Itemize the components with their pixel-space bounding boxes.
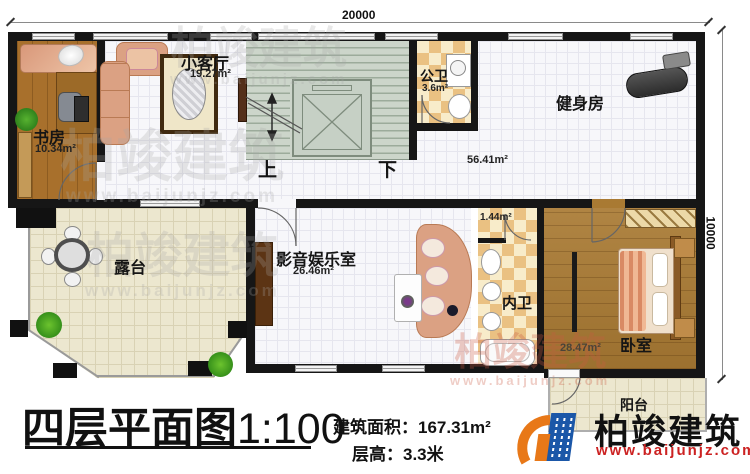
dimension-right-label: 10000 bbox=[704, 216, 718, 249]
living-area: 19.27m² bbox=[190, 68, 231, 80]
window-media bbox=[382, 365, 425, 372]
building-area-value: 167.31m² bbox=[418, 418, 491, 437]
dimension-line-right bbox=[722, 30, 723, 380]
stair-treads-left bbox=[246, 79, 290, 160]
terrace-floor bbox=[17, 208, 246, 378]
floor-height-label: 层高： bbox=[352, 445, 403, 464]
bedroom-nightstand bbox=[674, 318, 695, 338]
closet-area: 1.44m² bbox=[480, 212, 512, 223]
study-area: 10.34m² bbox=[35, 143, 76, 155]
living-sofa bbox=[100, 61, 130, 145]
media-tv-cabinet bbox=[255, 242, 273, 326]
window bbox=[32, 33, 75, 40]
dimension-line-top bbox=[10, 22, 710, 23]
terrace-column bbox=[228, 321, 247, 338]
media-sofa-cushion bbox=[421, 238, 445, 258]
wall-closet-bottom bbox=[478, 238, 506, 243]
floor-height-line: 层高：3.3米 bbox=[352, 440, 444, 465]
terrace-table bbox=[54, 238, 90, 272]
wall-media-left bbox=[246, 208, 255, 373]
inner-bath-bathtub-inner bbox=[485, 343, 530, 362]
bedroom-area: 28.47m² bbox=[560, 342, 601, 354]
brand-url: www.baijunjz.com bbox=[596, 442, 750, 459]
balcony-door-panel bbox=[548, 369, 580, 378]
bedroom-label: 卧室 bbox=[620, 332, 652, 356]
elevator-door-mark bbox=[312, 85, 352, 91]
terrace-plant bbox=[208, 352, 233, 377]
window-terrace bbox=[140, 200, 200, 207]
terrace-label: 露台 bbox=[114, 254, 146, 278]
window-media bbox=[295, 365, 337, 372]
building-area-label: 建筑面积： bbox=[333, 418, 418, 437]
dimension-tick bbox=[704, 17, 713, 26]
window bbox=[258, 33, 375, 40]
terrace-column bbox=[16, 208, 56, 228]
media-sofa-cushion bbox=[425, 266, 449, 286]
inner-bath-sink bbox=[482, 312, 501, 331]
dimension-tick bbox=[717, 374, 726, 383]
terrace-column bbox=[10, 320, 28, 337]
dimension-top-label: 20000 bbox=[342, 8, 375, 22]
study-cabinet bbox=[18, 132, 32, 198]
living-tv-cabinet bbox=[238, 78, 247, 122]
wall-inner-bath-right bbox=[537, 208, 544, 365]
floor-height-value: 3.3米 bbox=[403, 445, 444, 464]
media-area: 26.46m² bbox=[293, 265, 334, 277]
stair-up-label: 上 bbox=[258, 155, 277, 182]
wall-right bbox=[696, 32, 705, 378]
stair-treads-right bbox=[372, 79, 409, 160]
stair-down-label: 下 bbox=[378, 155, 397, 182]
door-gap-media bbox=[258, 199, 296, 208]
door-gap-bedroom bbox=[592, 199, 625, 208]
wall-stairwell-right bbox=[409, 32, 417, 160]
public-bath-basin bbox=[450, 60, 466, 76]
public-bath-area: 3.6m² bbox=[422, 83, 448, 94]
window bbox=[210, 33, 252, 40]
floor-plan-canvas: 20000 10000 bbox=[0, 0, 750, 474]
terrace-chair bbox=[88, 248, 103, 265]
door-gap-study bbox=[97, 162, 105, 200]
stair-treads-top bbox=[246, 41, 409, 79]
bedroom-wardrobe bbox=[625, 209, 696, 228]
inner-bath-sink bbox=[482, 282, 501, 301]
bedroom-pillow bbox=[652, 253, 668, 287]
bedroom-blanket bbox=[620, 251, 646, 331]
brand-logo-icon bbox=[512, 408, 592, 466]
media-person bbox=[447, 305, 458, 316]
window bbox=[93, 33, 168, 40]
wall-public-bath-right bbox=[471, 32, 478, 131]
inner-bath-toilet bbox=[481, 249, 501, 275]
terrace-column bbox=[53, 363, 77, 378]
inner-bath-label: 内卫 bbox=[502, 292, 532, 313]
building-area-line: 建筑面积：167.31m² bbox=[333, 413, 491, 438]
study-monitor bbox=[74, 96, 89, 122]
living-armchair-cushion bbox=[126, 48, 158, 70]
terrace-railing-left bbox=[28, 210, 30, 330]
terrace-chair bbox=[64, 272, 81, 287]
terrace-plant bbox=[36, 312, 62, 338]
media-table-flowers bbox=[401, 295, 414, 308]
bedroom-pillow bbox=[652, 292, 668, 326]
media-sofa-cushion bbox=[421, 296, 445, 316]
bedroom-nightstand bbox=[674, 238, 695, 258]
title-underline bbox=[25, 446, 311, 449]
window bbox=[630, 33, 673, 40]
bedroom-tv bbox=[572, 252, 577, 332]
elevator-inner-box bbox=[302, 94, 362, 150]
gym-area: 56.41m² bbox=[467, 154, 508, 166]
window bbox=[508, 33, 563, 40]
window bbox=[385, 33, 438, 40]
gym-label: 健身房 bbox=[556, 90, 604, 114]
wall-public-bath-bottom bbox=[409, 123, 478, 131]
public-bath-toilet bbox=[448, 94, 471, 119]
